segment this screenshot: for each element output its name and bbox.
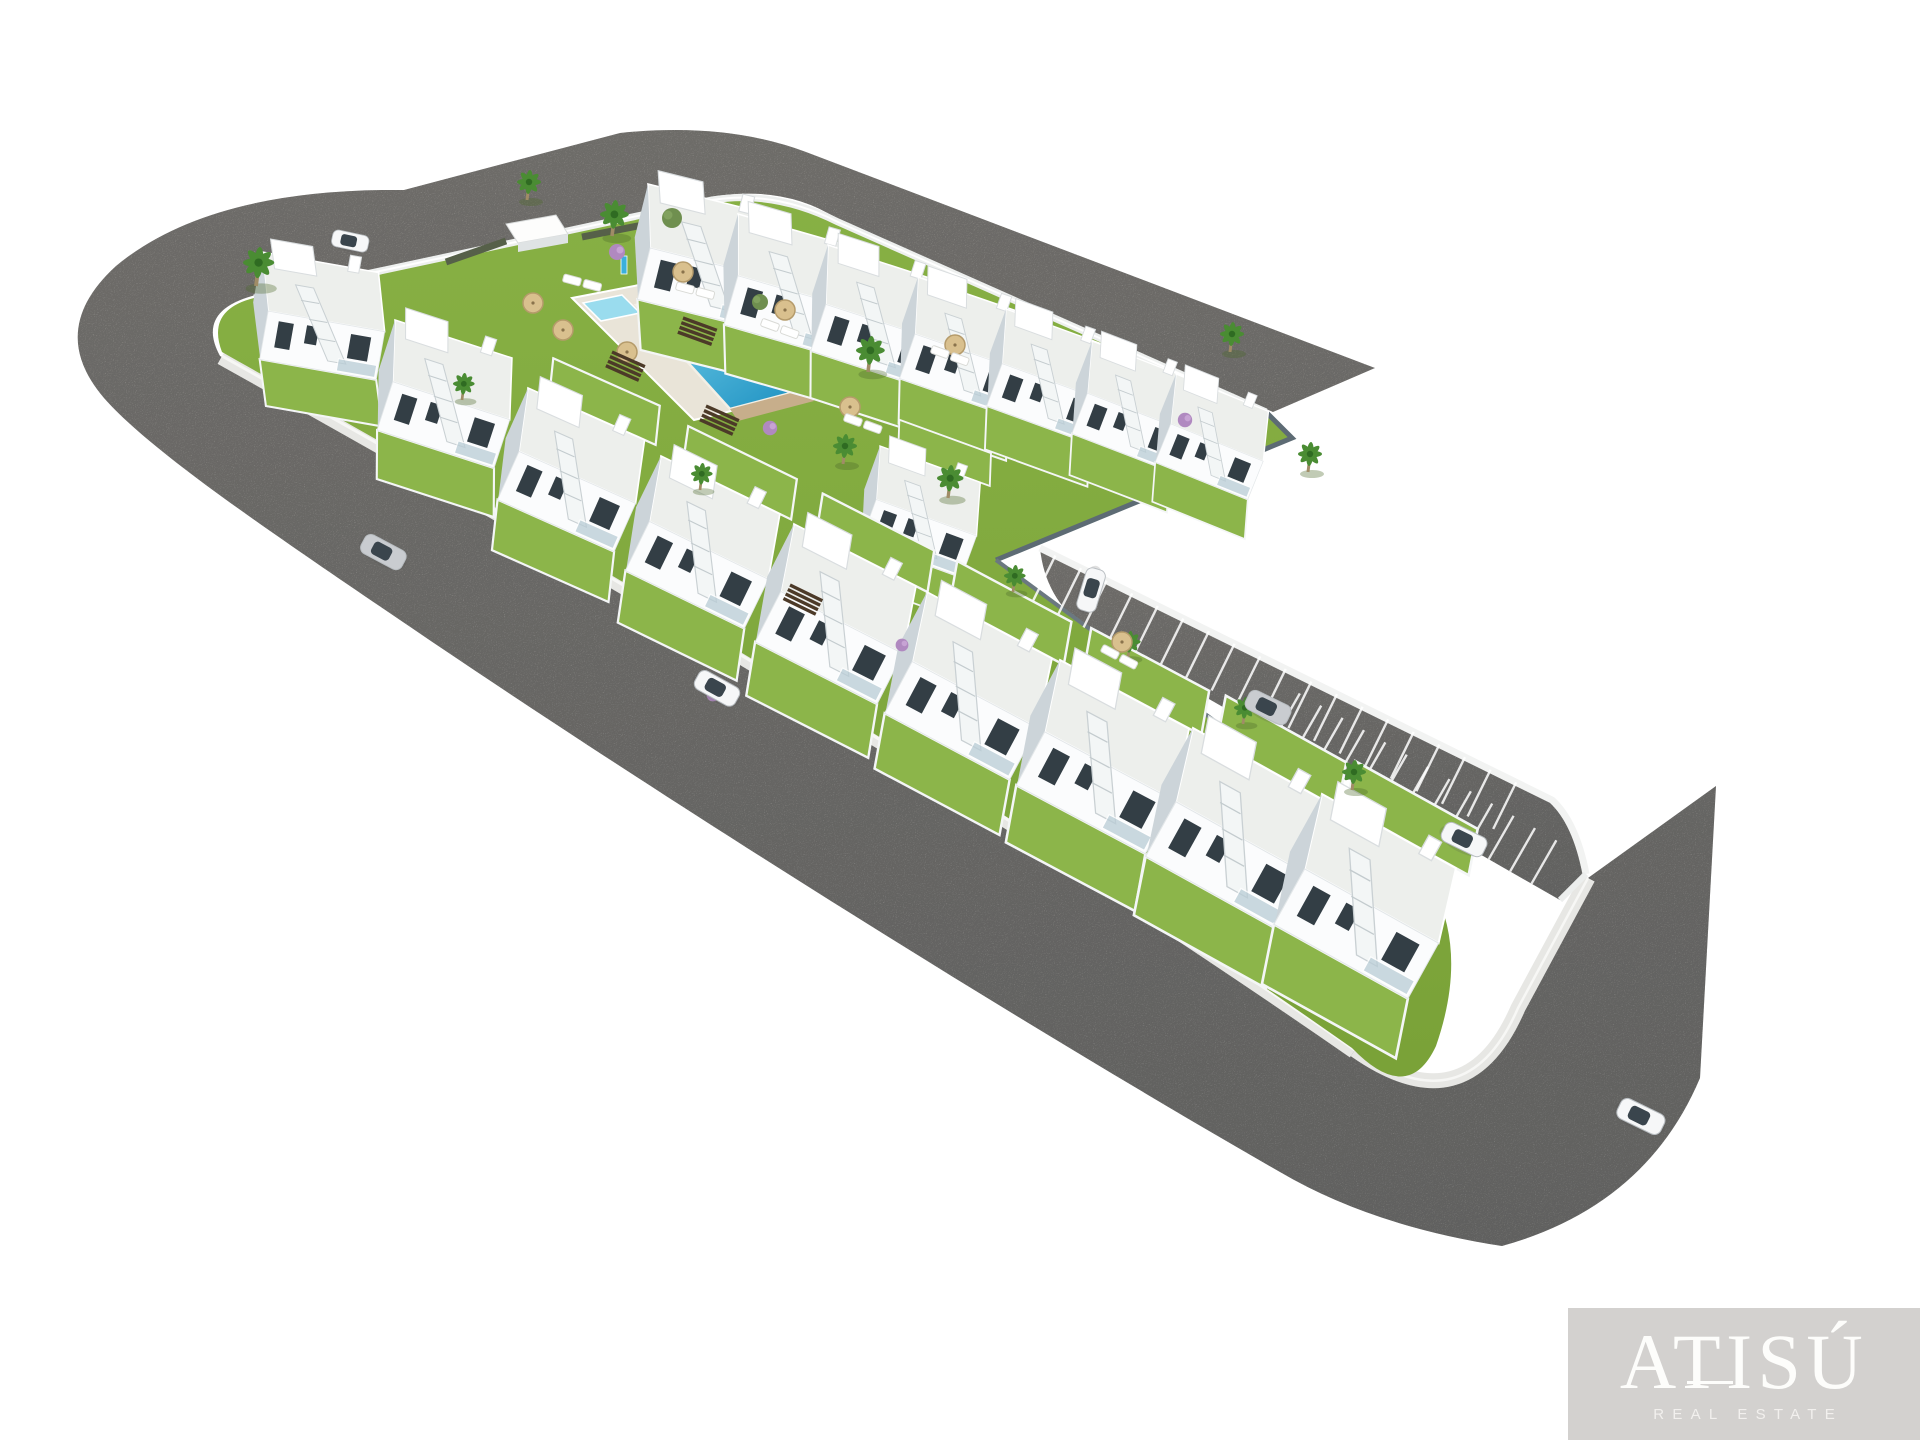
parasol bbox=[1112, 632, 1132, 652]
brand-tagline: REAL ESTATE bbox=[1645, 1406, 1843, 1423]
parasol bbox=[553, 320, 573, 340]
parasol bbox=[673, 262, 693, 282]
palm-tree bbox=[1298, 442, 1324, 478]
olive-tree bbox=[752, 294, 768, 310]
parasol bbox=[840, 397, 860, 417]
flowering-tree bbox=[609, 244, 625, 260]
brand-logo: ATISÚ REAL ESTATE bbox=[1568, 1308, 1920, 1440]
olive-tree bbox=[662, 208, 682, 228]
site-plan-render: ATISÚ REAL ESTATE bbox=[0, 0, 1920, 1440]
parasol bbox=[523, 293, 543, 313]
flowering-tree bbox=[896, 639, 909, 652]
flowering-tree bbox=[763, 421, 777, 435]
brand-name: ATISÚ bbox=[1620, 1325, 1868, 1399]
pool-shower bbox=[621, 256, 627, 274]
parasol bbox=[775, 300, 795, 320]
aerial-render-canvas bbox=[0, 0, 1920, 1440]
flowering-tree bbox=[1178, 413, 1192, 427]
